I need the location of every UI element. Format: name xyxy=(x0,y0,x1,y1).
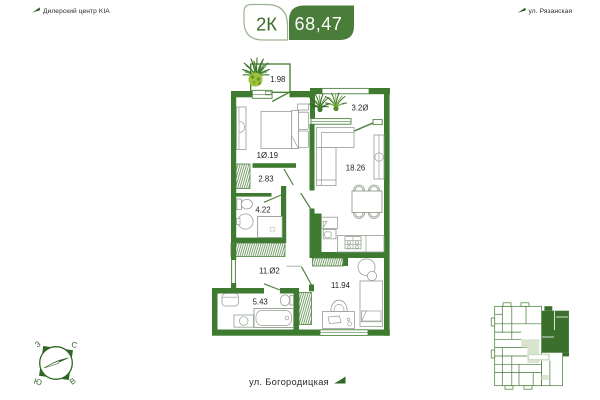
svg-text:5.43: 5.43 xyxy=(253,298,268,307)
svg-text:ул. Богородицкая: ул. Богородицкая xyxy=(249,377,329,387)
svg-text:3.2Ø: 3.2Ø xyxy=(352,104,369,113)
svg-text:2.83: 2.83 xyxy=(258,175,273,184)
svg-text:4.22: 4.22 xyxy=(255,205,270,214)
svg-text:1Ø.19: 1Ø.19 xyxy=(257,151,278,160)
svg-text:18.26: 18.26 xyxy=(346,164,366,173)
svg-text:2К: 2К xyxy=(256,14,277,35)
svg-text:68,47: 68,47 xyxy=(294,14,342,34)
svg-text:11.Ø2: 11.Ø2 xyxy=(259,267,280,276)
svg-text:11.94: 11.94 xyxy=(331,281,351,290)
svg-text:Дилерский центр KIA: Дилерский центр KIA xyxy=(43,7,110,15)
svg-text:ул. Рязанская: ул. Рязанская xyxy=(529,8,573,15)
svg-text:1.98: 1.98 xyxy=(270,75,285,84)
